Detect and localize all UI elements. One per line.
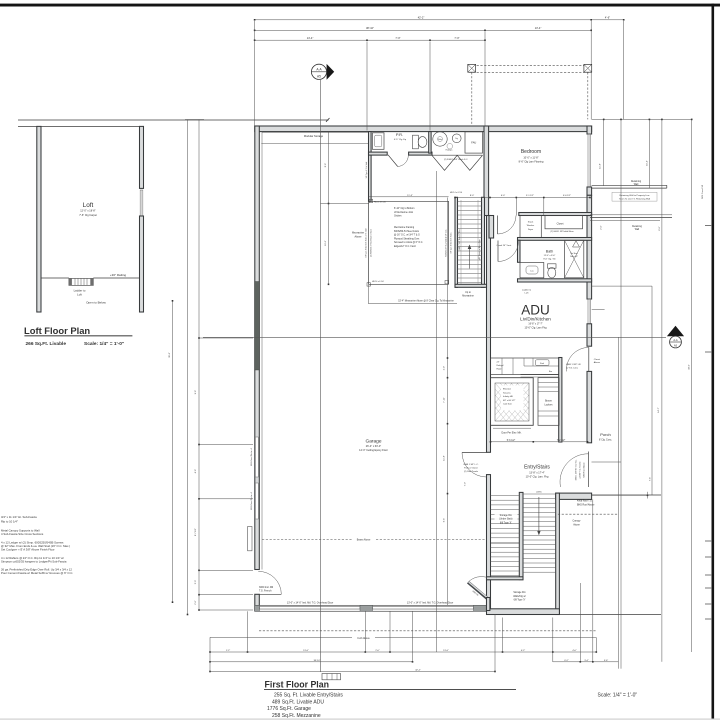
svg-text:Scale: 1/4" = 1'-0": Scale: 1/4" = 1'-0" xyxy=(84,341,124,347)
svg-text:15'-4" Mezzanine Above @ 8' Cl: 15'-4" Mezzanine Above @ 8' Clear Clg. T… xyxy=(398,300,454,303)
svg-text:255 Sq. Ft. Livable Entry/Stai: 255 Sq. Ft. Livable Entry/Stairs xyxy=(274,693,343,699)
svg-text:6016 Fixed Wndw +2: 6016 Fixed Wndw +2 xyxy=(251,492,253,510)
svg-text:3'-0": 3'-0" xyxy=(195,580,197,585)
svg-text:11'-8": 11'-8" xyxy=(600,163,602,169)
svg-text:Pour Cement Fascia w/ Metal So: Pour Cement Fascia w/ Metal Soffit w/ Gr… xyxy=(1,571,73,575)
svg-text:3/4" x 11 1/4" Ht. Sub-Fascia: 3/4" x 11 1/4" Ht. Sub-Fascia xyxy=(1,515,37,519)
svg-text:30'-6": 30'-6" xyxy=(169,352,171,358)
svg-text:3'-4": 3'-4" xyxy=(584,660,589,662)
svg-text:42'-2": 42'-2" xyxy=(418,16,425,20)
svg-text:(14R) 7 3/4" Rise 11" Run: (14R) 7 3/4" Rise 11" Run xyxy=(459,229,461,251)
svg-text:489 Sq.Ft. Livable ADU: 489 Sq.Ft. Livable ADU xyxy=(272,699,324,705)
svg-text:BHD Roof Above: BHD Roof Above xyxy=(577,503,595,506)
svg-text:266 Sq.Ft. Livable: 266 Sq.Ft. Livable xyxy=(26,341,67,347)
svg-text:7'-0": 7'-0" xyxy=(454,36,459,40)
svg-text:Curb Above: Curb Above xyxy=(357,637,370,640)
svg-text:24": 24" xyxy=(497,362,500,364)
svg-text:Mezzanine Framing: Mezzanine Framing xyxy=(394,226,415,229)
svg-text:Liv/Din/Kitchen: Liv/Din/Kitchen xyxy=(520,316,551,321)
svg-text:4'-0": 4'-0" xyxy=(572,650,577,652)
svg-text:Cab Size: Cab Size xyxy=(503,404,513,406)
svg-text:3060 Insl. Mtl: 3060 Insl. Mtl xyxy=(259,586,274,589)
svg-text:@ 16" O.C. w/ 3/4" T & G: @ 16" O.C. w/ 3/4" T & G xyxy=(394,235,420,237)
svg-text:Elevator: Elevator xyxy=(503,388,511,391)
svg-text:11'-8": 11'-8" xyxy=(444,455,446,461)
svg-text:6068 1 3/8" LR: 6068 1 3/8" LR xyxy=(566,364,581,366)
svg-text:9'-6": 9'-6" xyxy=(195,390,197,395)
svg-text:Set Coolgar+ +/3' A 3/8" Above: Set Coolgar+ +/3' A 3/8" Above Finish Fl… xyxy=(1,548,55,552)
svg-text:13'-8" x 17'-4": 13'-8" x 17'-4" xyxy=(529,472,544,475)
svg-text:10'-0" Clg. Lam Flrg: 10'-0" Clg. Lam Flrg xyxy=(524,326,547,329)
svg-text:8' Clg. Conc.: 8' Clg. Conc. xyxy=(599,439,612,441)
svg-text:Push w/ Closer: Push w/ Closer xyxy=(464,466,478,469)
svg-text:26'-4" x 60'-0": 26'-4" x 60'-0" xyxy=(366,445,381,448)
svg-text:Washer: Washer xyxy=(527,224,535,227)
svg-text:13'-0": 13'-0" xyxy=(443,650,449,652)
svg-text:(2) 600S250-97 Built Back to B: (2) 600S250-97 Built Back to Back xyxy=(370,229,373,257)
svg-text:1776 Sq.Ft. Garage: 1776 Sq.Ft. Garage xyxy=(267,706,311,712)
svg-text:4068 Roof T.G.: 4068 Roof T.G. xyxy=(577,501,593,503)
svg-text:Garage: Garage xyxy=(366,439,382,445)
svg-text:Porch: Porch xyxy=(600,432,610,437)
svg-text:2'-6": 2'-6" xyxy=(601,225,603,230)
svg-text:Screwed to Joists @ 6" O.C.: Screwed to Joists @ 6" O.C. xyxy=(394,241,423,244)
svg-text:7'-6": 7'-6" xyxy=(649,477,651,482)
svg-text:6/8 Type 'X': 6/8 Type 'X' xyxy=(500,522,512,524)
svg-text:16'-8" x 17'-7": 16'-8" x 17'-7" xyxy=(528,323,542,325)
svg-text:Loft: Loft xyxy=(77,292,82,296)
svg-text:ADU: ADU xyxy=(521,302,550,317)
svg-text:Bedroom: Bedroom xyxy=(521,149,541,155)
svg-text:2'-9": 2'-9" xyxy=(444,366,446,371)
svg-text:34'-0": 34'-0" xyxy=(688,364,690,370)
svg-text:13'-4": 13'-4" xyxy=(535,26,542,30)
svg-text:3456 Cross LVF: 3456 Cross LVF xyxy=(702,184,704,199)
svg-text:of Mezzanine Joist: of Mezzanine Joist xyxy=(394,211,413,214)
svg-text:w/4 96" T.G. Sidelite: w/4 96" T.G. Sidelite xyxy=(579,462,582,479)
svg-text:5/8 Type X 1 Hr Wall: 5/8 Type X 1 Hr Wall xyxy=(366,161,368,178)
svg-text:38'-10": 38'-10" xyxy=(366,26,374,30)
svg-text:HD2 4 x 6 1/4: HD2 4 x 6 1/4 xyxy=(374,201,386,203)
svg-text:HD2 4 x 6 1/4: HD2 4 x 6 1/4 xyxy=(450,192,463,194)
svg-text:Retaining: Retaining xyxy=(632,225,642,228)
svg-text:5/8 Type X Bd. Both Sides 1 Hr: 5/8 Type X Bd. Both Sides 1 Hr. Wall xyxy=(365,228,368,258)
svg-text:(Under Stair): (Under Stair) xyxy=(499,518,512,521)
svg-text:Retaining Wall to Property Lin: Retaining Wall to Property Line xyxy=(619,194,650,197)
svg-text:Wshr: Wshr xyxy=(438,138,442,141)
svg-text:Above: Above xyxy=(594,361,601,364)
svg-text:5'-6": 5'-6" xyxy=(604,660,609,662)
svg-text:Mezzanine: Mezzanine xyxy=(462,295,474,298)
svg-text:4'-6": 4'-6" xyxy=(605,16,610,20)
svg-text:258 Sq.Ft. Mezzanine: 258 Sq.Ft. Mezzanine xyxy=(272,713,321,719)
svg-text:14'-4": 14'-4" xyxy=(307,36,314,40)
svg-text:Scale: 1/4" = 1'-0": Scale: 1/4" = 1'-0" xyxy=(598,693,638,699)
svg-text:4'-2": 4'-2" xyxy=(521,650,526,652)
svg-text:6'-6 1/2": 6'-6 1/2" xyxy=(563,195,571,197)
svg-text:2'-6": 2'-6" xyxy=(195,600,197,605)
svg-text:(2) 30m Panels: (2) 30m Panels xyxy=(464,471,478,473)
svg-text:38'-10": 38'-10" xyxy=(314,660,321,662)
svg-text:1'-2": 1'-2" xyxy=(226,650,231,652)
svg-text:5'-1 1/2": 5'-1 1/2" xyxy=(526,195,534,197)
svg-text:48" x 60 1/2": 48" x 60 1/2" xyxy=(503,400,516,402)
svg-text:Canopy: Canopy xyxy=(573,521,582,523)
svg-text:Closet: Closet xyxy=(594,358,601,361)
svg-text:6016 Fixed Wndw +2: 6016 Fixed Wndw +2 xyxy=(251,448,253,466)
svg-text:5/8 Type X Bd. Both Sides: 5/8 Type X Bd. Both Sides xyxy=(450,232,453,253)
svg-text:Plywood Sheathing Over.: Plywood Sheathing Over. xyxy=(394,237,420,240)
svg-text:+36" Railing: +36" Railing xyxy=(110,273,126,277)
svg-text:w/ T.G. Lites: w/ T.G. Lites xyxy=(566,366,579,369)
svg-text:9'-6": 9'-6" xyxy=(444,518,446,523)
svg-text:Savaria: Savaria xyxy=(503,391,511,394)
svg-text:8'-6": 8'-6" xyxy=(325,163,327,168)
svg-text:Open to Below: Open to Below xyxy=(86,300,107,304)
svg-text:6'-0": 6'-0" xyxy=(659,226,661,231)
svg-text:Refrige/: Refrige/ xyxy=(497,365,504,367)
svg-text:First Floor Plan: First Floor Plan xyxy=(265,680,330,690)
svg-text:Loft: Loft xyxy=(83,202,94,209)
svg-text:A-A: A-A xyxy=(316,68,322,72)
svg-text:Rip to 10 1/4": Rip to 10 1/4" xyxy=(1,520,18,524)
svg-text:Broom: Broom xyxy=(545,400,552,403)
svg-text:7'-0": 7'-0" xyxy=(395,36,400,40)
svg-text:13'-0": 13'-0" xyxy=(303,650,309,652)
svg-text:Storage Rm: Storage Rm xyxy=(513,591,525,594)
svg-text:10'-0" Clg. Lam. Flrg: 10'-0" Clg. Lam. Flrg xyxy=(526,476,549,479)
svg-text:7'-2 1/2": 7'-2 1/2" xyxy=(557,440,566,442)
svg-text:Tie-In To Live I.V. Retaining: Tie-In To Live I.V. Retaining Wall xyxy=(619,198,651,201)
svg-text:Door Per Elev. Mfr.: Door Per Elev. Mfr. xyxy=(501,432,521,435)
svg-text:3068 1 3/4" Mtl T.G. Sec.: 3068 1 3/4" Mtl T.G. Sec. xyxy=(575,459,578,480)
svg-text:Storage Rm: Storage Rm xyxy=(500,514,512,517)
svg-text:Loft Floor Plan: Loft Floor Plan xyxy=(24,325,90,336)
svg-text:A5: A5 xyxy=(317,75,321,79)
svg-text:4'-6": 4'-6" xyxy=(195,469,197,474)
svg-text:8'-6" Clg. Tile: 8'-6" Clg. Tile xyxy=(543,258,556,260)
svg-text:Stack: Stack xyxy=(528,221,534,224)
svg-text:Tile Shwr: Tile Shwr xyxy=(570,253,578,255)
svg-text:+42" Guard w/ Alum Grip: +42" Guard w/ Alum Grip xyxy=(478,240,481,261)
svg-text:Niche 18": Niche 18" xyxy=(570,256,578,258)
svg-text:Simpson cc602/35 hangers to Le: Simpson cc602/35 hangers to Ledger/Pit S… xyxy=(1,560,67,564)
svg-text:Lockers: Lockers xyxy=(544,403,553,406)
svg-text:Walls/Clg w/: Walls/Clg w/ xyxy=(513,596,526,598)
svg-text:Bar: Bar xyxy=(549,371,552,373)
svg-text:(2') 6068 1 3/8" bifold Mirror: (2') 6068 1 3/8" bifold Mirror xyxy=(550,230,574,233)
svg-text:6/8 Type 'X': 6/8 Type 'X' xyxy=(514,600,526,602)
svg-text:2'-0": 2'-0" xyxy=(375,650,380,652)
svg-text:Hookups: Hookups xyxy=(446,150,453,152)
svg-text:600S250-97 Stud Wall @ 16" O.C: 600S250-97 Stud Wall @ 16" O.C. xyxy=(445,229,448,257)
svg-text:Infinity HD: Infinity HD xyxy=(503,395,514,398)
svg-text:600S250-54 Steel Joists: 600S250-54 Steel Joists xyxy=(394,230,420,233)
svg-text:(16R): (16R) xyxy=(536,491,541,493)
svg-text:(2) 3068 1 3/8" Wash S.C.: (2) 3068 1 3/8" Wash S.C. xyxy=(444,159,469,161)
svg-text:42'-2": 42'-2" xyxy=(415,670,421,672)
svg-text:Edges/12" O.C. Field: Edges/12" O.C. Field xyxy=(394,246,416,248)
svg-text:12'-4" x 8'-6": 12'-4" x 8'-6" xyxy=(544,255,556,257)
svg-text:Dry: Dry xyxy=(455,137,458,140)
svg-text:T.G. French: T.G. French xyxy=(259,590,272,593)
svg-text:14'-7": 14'-7" xyxy=(658,407,660,413)
svg-text:Sink: Sink xyxy=(540,363,544,365)
svg-text:8'-0": 8'-0" xyxy=(470,195,475,197)
svg-text:Girders: Girders xyxy=(394,215,402,218)
svg-text:Wall: Wall xyxy=(634,183,639,186)
svg-text:Wall: Wall xyxy=(635,229,640,231)
svg-text:Up to: Up to xyxy=(465,291,471,294)
svg-text:Loft: Loft xyxy=(525,292,529,295)
svg-text:6068 1 3/4" L.C.: 6068 1 3/4" L.C. xyxy=(464,464,479,466)
svg-text:Entry/Stairs: Entry/Stairs xyxy=(524,465,550,471)
svg-text:FAU: FAU xyxy=(471,141,476,145)
svg-text:Above: Above xyxy=(354,236,362,239)
svg-text:Above: Above xyxy=(573,523,580,526)
svg-text:14'-0" Ceiling Epoxy Floor: 14'-0" Ceiling Epoxy Floor xyxy=(359,449,388,452)
svg-text:7'-0": 7'-0" xyxy=(465,482,467,487)
svg-text:6'-2": 6'-2" xyxy=(564,660,569,662)
svg-text:10'-0": 10'-0" xyxy=(325,240,327,246)
svg-text:A5: A5 xyxy=(674,343,678,347)
svg-text:4'-5" Clg. Ep: 4'-5" Clg. Ep xyxy=(394,139,407,141)
svg-text:10'-0" x 11'-8": 10'-0" x 11'-8" xyxy=(523,157,538,160)
svg-text:Hood: Hood xyxy=(497,369,502,371)
svg-text:HD2 4 x 6 1/4: HD2 4 x 6 1/4 xyxy=(372,281,384,283)
svg-text:16'-4": 16'-4" xyxy=(647,160,649,166)
svg-text:13'-0" x 14'-0" Insl. Mtl. T.G: 13'-0" x 14'-0" Insl. Mtl. T.G. Overhead… xyxy=(407,602,453,605)
svg-text:8'-10" Clg to Bottom: 8'-10" Clg to Bottom xyxy=(394,207,414,210)
svg-text:Bath: Bath xyxy=(546,249,553,253)
svg-text:4 Sub-Fascia Size Cross Sectio: 4 Sub-Fascia Size Cross Sections xyxy=(1,532,44,536)
svg-text:Ladder to: Ladder to xyxy=(522,288,532,291)
svg-text:12'-0" x 18'-8": 12'-0" x 18'-8" xyxy=(80,210,95,213)
svg-text:A-A: A-A xyxy=(673,338,678,342)
svg-text:Dryer: Dryer xyxy=(528,228,534,231)
svg-text:13'-0" x 14'-0" Insl. Mtl. T.G: 13'-0" x 14'-0" Insl. Mtl. T.G. Overhead… xyxy=(287,602,333,605)
svg-text:Lav: Lav xyxy=(530,271,533,273)
svg-text:Beam Above: Beam Above xyxy=(357,538,371,541)
svg-text:7'-11": 7'-11" xyxy=(444,397,446,403)
svg-text:6068 Fixed Above: 6068 Fixed Above xyxy=(583,462,586,477)
svg-text:P.R.: P.R. xyxy=(396,132,403,137)
svg-text:Closet: Closet xyxy=(557,222,564,225)
svg-text:5'-6 1/2": 5'-6 1/2" xyxy=(507,440,516,442)
svg-text:7'-6" Clg Carpet: 7'-6" Clg Carpet xyxy=(79,214,97,217)
svg-text:Mezzanine: Mezzanine xyxy=(352,232,365,235)
svg-text:8'-6" Clg Lam Flooring: 8'-6" Clg Lam Flooring xyxy=(519,161,544,164)
svg-text:6'-0": 6'-0" xyxy=(501,195,506,197)
svg-text:11'-3": 11'-3" xyxy=(407,195,413,197)
svg-text:8'-7 1/2": 8'-7 1/2" xyxy=(195,528,197,536)
svg-text:Crawl 24" Vent.: Crawl 24" Vent. xyxy=(497,244,512,247)
